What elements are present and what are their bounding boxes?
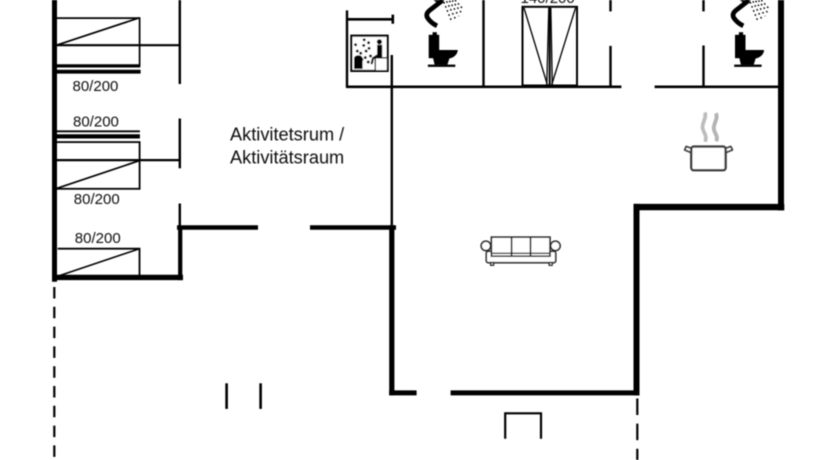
svg-text:Aktivitätsraum: Aktivitätsraum xyxy=(230,148,344,168)
svg-text:Aktivitetsrum /: Aktivitetsrum / xyxy=(230,125,345,145)
svg-text:140/200: 140/200 xyxy=(521,0,575,7)
svg-text:80/200: 80/200 xyxy=(74,191,120,208)
svg-text:80/200: 80/200 xyxy=(73,114,119,131)
svg-text:80/200: 80/200 xyxy=(73,78,119,95)
svg-text:80/200: 80/200 xyxy=(75,230,121,247)
